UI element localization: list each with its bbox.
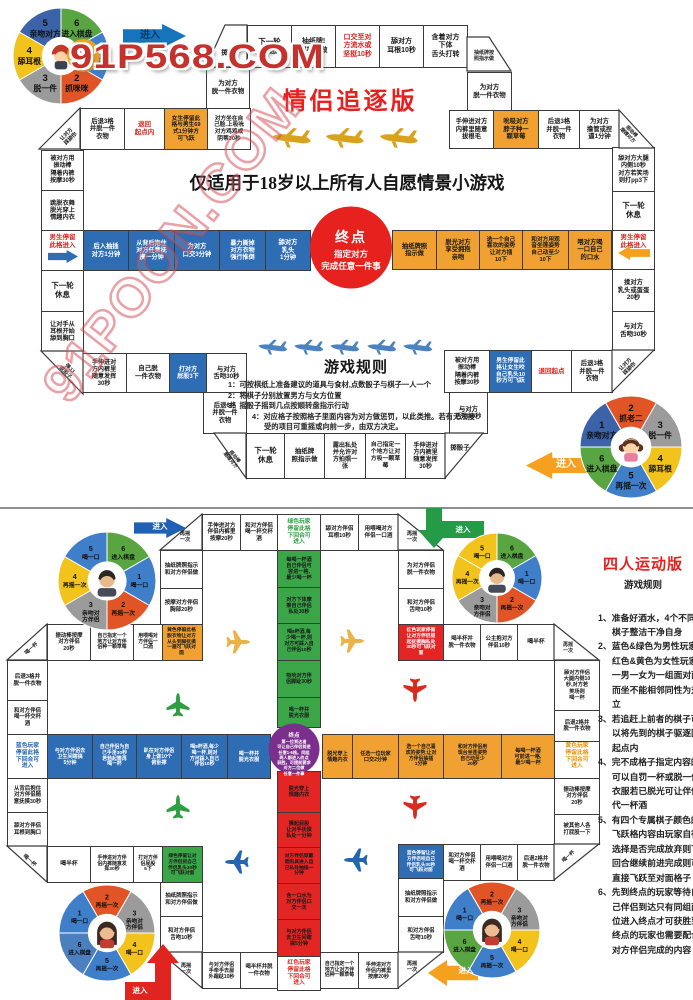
svg-text:方伴侣: 方伴侣 <box>474 610 491 618</box>
svg-text:5: 5 <box>89 544 93 553</box>
svg-text:亲吻对: 亲吻对 <box>511 914 528 922</box>
svg-text:抓咪咪: 抓咪咪 <box>65 83 89 93</box>
svg-text:3: 3 <box>132 910 136 917</box>
svg-text:5: 5 <box>43 18 49 29</box>
svg-text:再摇一次: 再摇一次 <box>96 964 119 972</box>
svg-text:6: 6 <box>121 544 125 553</box>
svg-text:2: 2 <box>628 403 633 414</box>
svg-text:喝一口: 喝一口 <box>518 578 535 586</box>
svg-text:方伴侣: 方伴侣 <box>511 920 528 928</box>
svg-text:方伴侣: 方伴侣 <box>82 615 100 623</box>
svg-text:再摇一次: 再摇一次 <box>180 529 191 543</box>
svg-text:舔耳根: 舔耳根 <box>649 464 673 474</box>
svg-text:再摇一次: 再摇一次 <box>615 481 646 491</box>
svg-text:进入棋盘: 进入棋盘 <box>501 552 524 560</box>
svg-text:喝一口: 喝一口 <box>474 552 491 560</box>
svg-text:4: 4 <box>658 454 664 465</box>
svg-text:3: 3 <box>480 597 484 604</box>
svg-text:5: 5 <box>480 546 484 553</box>
svg-text:进入棋盘: 进入棋盘 <box>586 464 617 474</box>
svg-text:4: 4 <box>73 572 77 581</box>
svg-text:再摇一次: 再摇一次 <box>63 581 87 589</box>
svg-text:亲吻对: 亲吻对 <box>126 917 143 925</box>
svg-text:舔耳根: 舔耳根 <box>18 56 42 66</box>
svg-text:进入棋盘: 进入棋盘 <box>453 946 476 954</box>
svg-text:3: 3 <box>517 907 521 914</box>
svg-text:喝一口: 喝一口 <box>82 553 100 561</box>
svg-text:2: 2 <box>510 597 514 604</box>
svg-text:喝一口: 喝一口 <box>511 946 528 954</box>
svg-text:5: 5 <box>490 955 494 962</box>
svg-text:脱一件: 脱一件 <box>649 430 673 440</box>
svg-text:抓老二: 抓老二 <box>619 413 643 423</box>
svg-text:再摇一次: 再摇一次 <box>481 961 504 969</box>
svg-text:喝一口: 喝一口 <box>456 914 473 922</box>
svg-text:6: 6 <box>74 18 79 29</box>
svg-text:进入棋盘: 进入棋盘 <box>68 949 91 957</box>
svg-text:掷骰子: 掷骰子 <box>450 443 470 452</box>
svg-text:6: 6 <box>599 454 604 465</box>
svg-text:3: 3 <box>89 600 93 609</box>
svg-text:2: 2 <box>105 895 109 902</box>
svg-text:再摇一次: 再摇一次 <box>407 959 418 973</box>
svg-text:2: 2 <box>490 892 494 899</box>
svg-text:1: 1 <box>78 910 82 917</box>
svg-text:再摇一次: 再摇一次 <box>407 529 418 543</box>
svg-text:喝一口: 喝一口 <box>130 581 148 589</box>
svg-text:再摇一次: 再摇一次 <box>181 961 192 975</box>
svg-text:6: 6 <box>463 939 467 946</box>
svg-text:3: 3 <box>43 73 48 84</box>
svg-text:1: 1 <box>599 420 605 431</box>
svg-text:再摇一次: 再摇一次 <box>111 609 135 617</box>
svg-text:再摇一次: 再摇一次 <box>456 578 479 586</box>
svg-text:1: 1 <box>137 572 141 581</box>
svg-text:喝一口: 喝一口 <box>126 949 143 957</box>
svg-text:喝一口: 喝一口 <box>71 917 88 925</box>
svg-text:进入棋盘: 进入棋盘 <box>111 553 135 561</box>
svg-text:抽纸牌按照指示做: 抽纸牌按照指示做 <box>473 49 494 62</box>
svg-text:进入棋盘: 进入棋盘 <box>61 28 92 38</box>
svg-text:6: 6 <box>78 942 82 949</box>
svg-text:4: 4 <box>465 571 469 578</box>
svg-text:亲吻对方: 亲吻对方 <box>30 28 61 38</box>
svg-text:再摇一次: 再摇一次 <box>96 901 119 909</box>
svg-text:亲吻对: 亲吻对 <box>82 609 100 617</box>
svg-text:3: 3 <box>658 420 663 431</box>
svg-text:再摇一次: 再摇一次 <box>563 641 573 654</box>
svg-text:再摇一次: 再摇一次 <box>481 898 504 906</box>
svg-text:5: 5 <box>105 958 109 965</box>
svg-text:再摇一次: 再摇一次 <box>501 604 524 612</box>
svg-text:4: 4 <box>132 942 136 949</box>
svg-text:脱一件: 脱一件 <box>34 83 58 93</box>
svg-text:5: 5 <box>628 470 634 481</box>
svg-text:亲吻对: 亲吻对 <box>474 604 491 612</box>
svg-text:6: 6 <box>510 546 514 553</box>
svg-text:方伴侣: 方伴侣 <box>126 923 143 931</box>
svg-text:1: 1 <box>463 907 467 914</box>
svg-text:2: 2 <box>121 600 125 609</box>
svg-text:1: 1 <box>525 571 529 578</box>
svg-text:4: 4 <box>27 46 33 57</box>
svg-text:4: 4 <box>517 939 521 946</box>
